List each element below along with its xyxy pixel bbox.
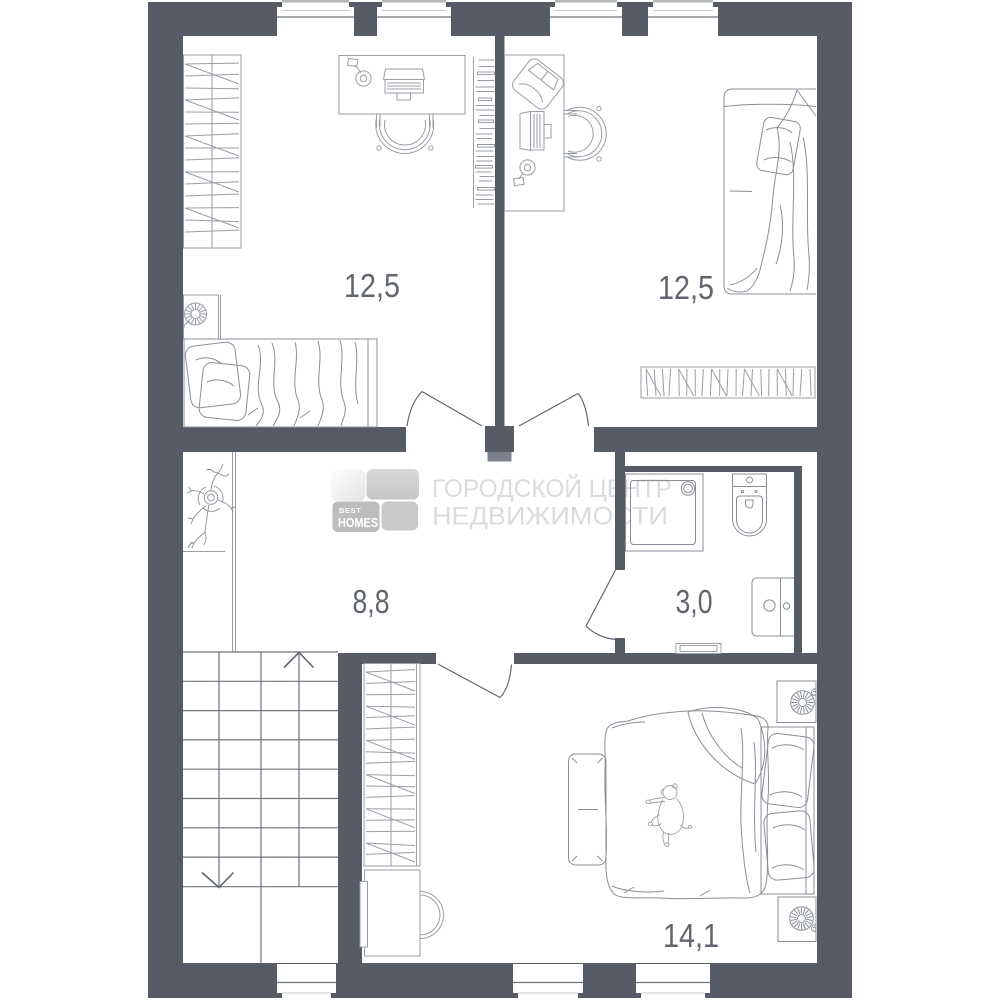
svg-text:8,8: 8,8 xyxy=(353,583,390,620)
svg-text:12,5: 12,5 xyxy=(344,267,400,304)
svg-text:14,1: 14,1 xyxy=(663,917,719,954)
svg-text:HOMES: HOMES xyxy=(338,515,378,530)
svg-text:12,5: 12,5 xyxy=(658,269,714,306)
svg-text:3,0: 3,0 xyxy=(676,583,713,620)
svg-text:BEST: BEST xyxy=(339,506,361,515)
svg-text:НЕДВИЖИМОСТИ: НЕДВИЖИМОСТИ xyxy=(432,503,668,531)
svg-text:ГОРОДСКОЙ ЦЕНТР: ГОРОДСКОЙ ЦЕНТР xyxy=(432,473,672,503)
